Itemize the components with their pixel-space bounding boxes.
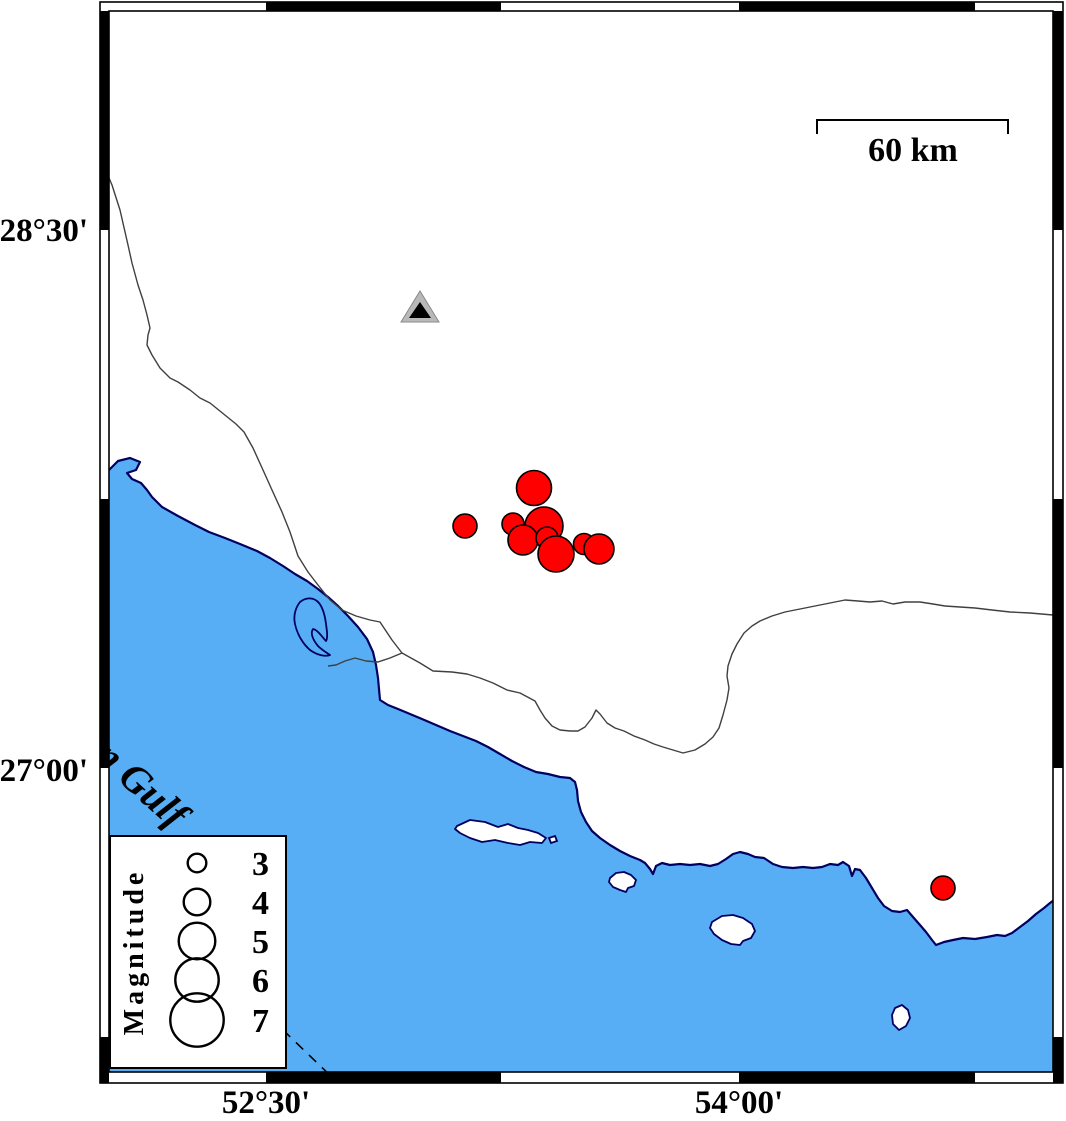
legend: Magnitude 34567: [110, 836, 286, 1068]
legend-value: 4: [252, 885, 269, 922]
islet-dot: [549, 836, 557, 843]
lat-label-bottom: 27°00': [0, 753, 88, 789]
legend-value: 3: [252, 846, 269, 883]
legend-title: Magnitude: [119, 869, 150, 1036]
legend-value: 7: [252, 1003, 269, 1040]
lon-label-left: 52°30': [222, 1085, 310, 1121]
legend-value: 5: [252, 924, 269, 961]
earthquake-marker: [517, 471, 552, 506]
seismicity-map-page: Persian Gulf 28°30' 27°00' 52°30' 54°00': [0, 0, 1066, 1121]
scale-bar-label: 60 km: [868, 132, 958, 169]
legend-value: 6: [252, 963, 269, 1000]
map-canvas: Persian Gulf 28°30' 27°00' 52°30' 54°00': [0, 0, 1066, 1121]
earthquake-marker: [931, 876, 955, 900]
earthquake-marker: [453, 514, 477, 538]
earthquake-marker: [508, 525, 538, 555]
lat-label-top: 28°30': [0, 213, 88, 249]
earthquake-marker: [538, 536, 574, 572]
earthquake-marker: [584, 534, 614, 564]
lon-label-right: 54°00': [695, 1085, 783, 1121]
